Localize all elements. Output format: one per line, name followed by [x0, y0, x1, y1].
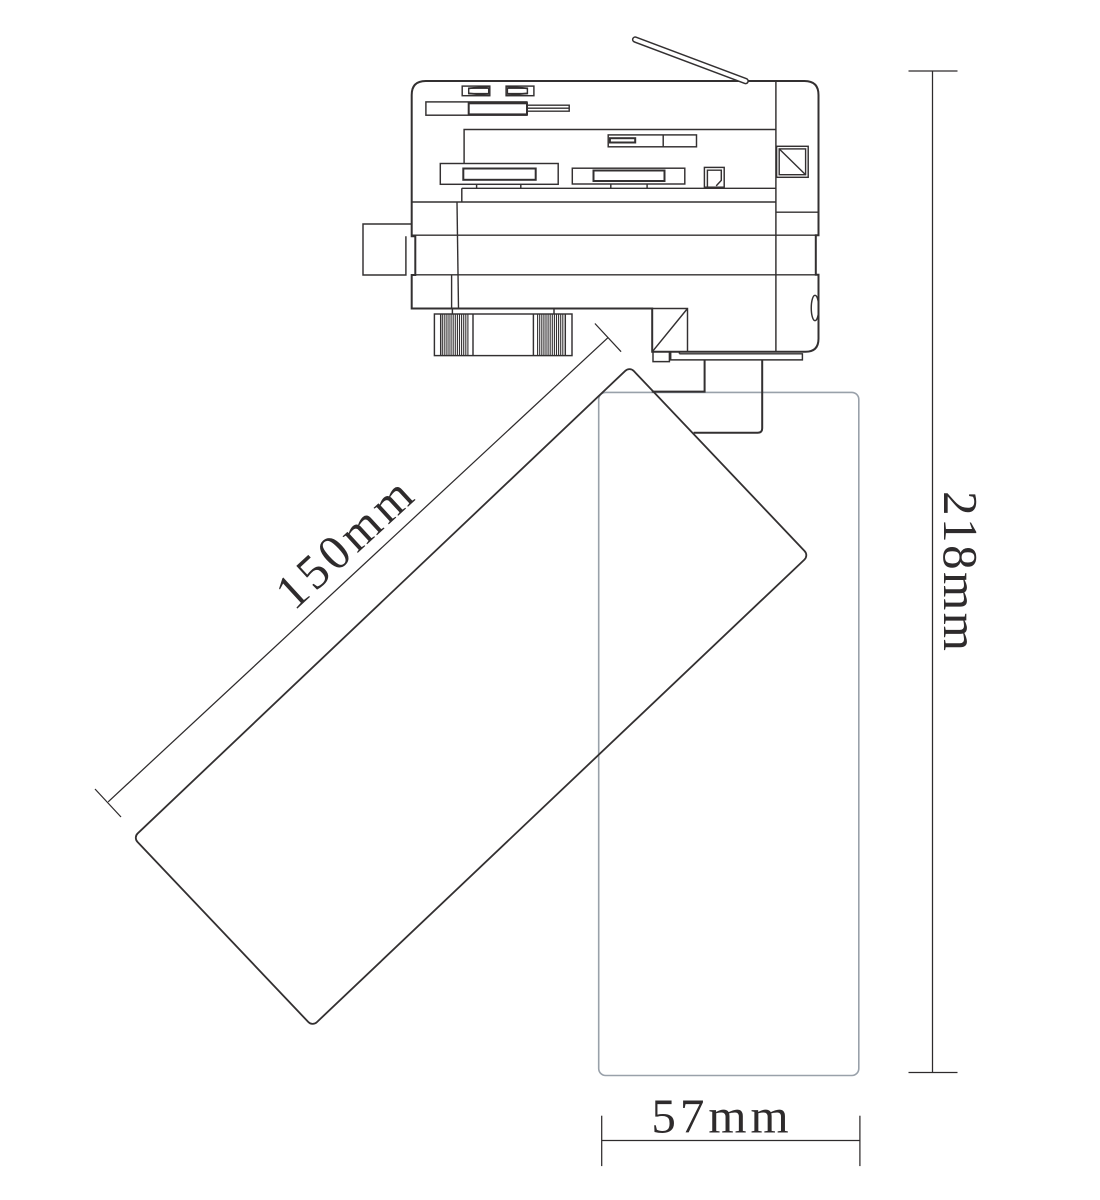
- svg-text:218mm: 218mm: [933, 491, 988, 653]
- svg-text:57mm: 57mm: [651, 1089, 792, 1144]
- svg-text:150mm: 150mm: [264, 464, 426, 619]
